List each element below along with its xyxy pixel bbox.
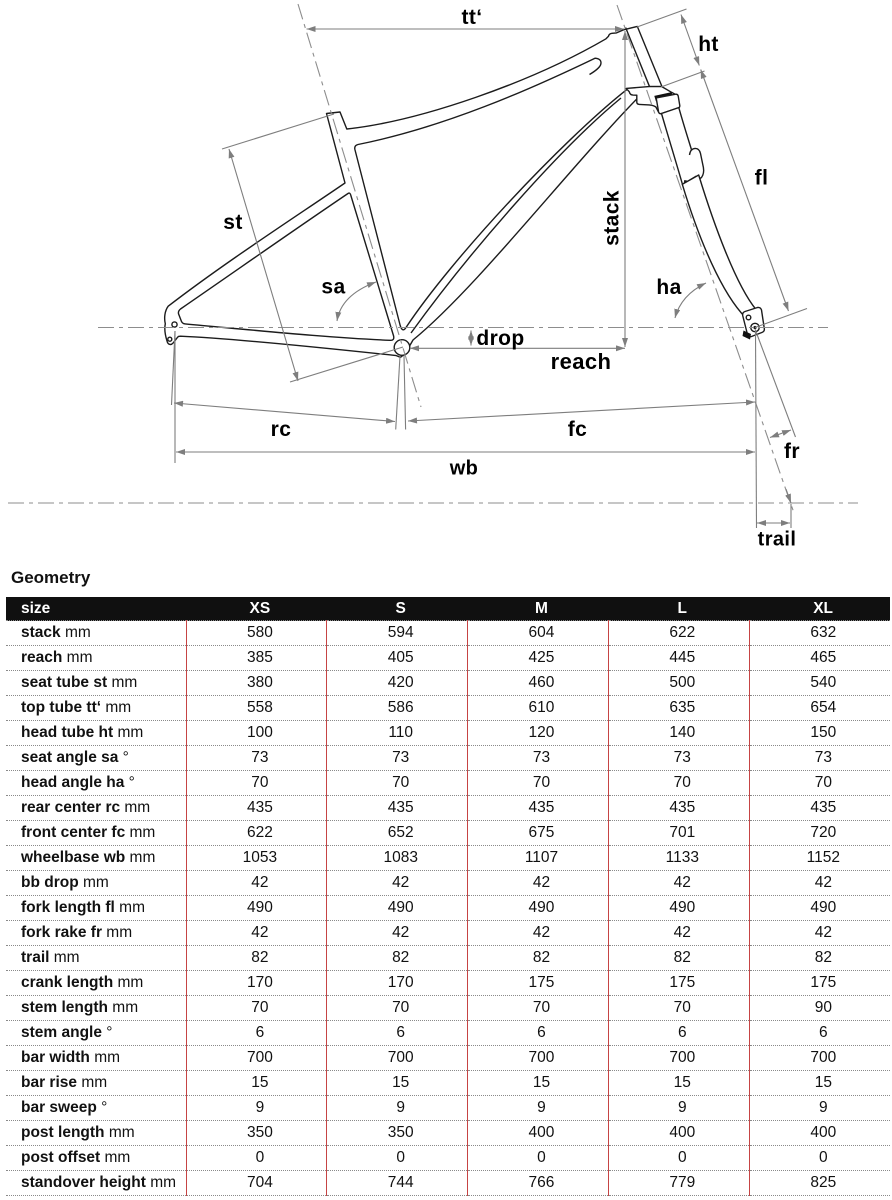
svg-text:fr: fr <box>784 440 800 463</box>
svg-text:trail: trail <box>758 529 797 551</box>
svg-text:stack: stack <box>601 190 624 246</box>
svg-text:sa: sa <box>321 276 345 299</box>
svg-text:wb: wb <box>449 458 479 480</box>
svg-text:fc: fc <box>568 418 587 441</box>
svg-text:reach: reach <box>551 349 612 374</box>
svg-text:drop: drop <box>476 327 524 350</box>
svg-text:st: st <box>223 211 242 234</box>
svg-text:ha: ha <box>656 276 681 299</box>
svg-text:tt‘: tt‘ <box>461 6 482 29</box>
svg-text:fl: fl <box>755 167 769 190</box>
svg-text:ht: ht <box>698 33 719 56</box>
svg-text:rc: rc <box>271 418 292 441</box>
